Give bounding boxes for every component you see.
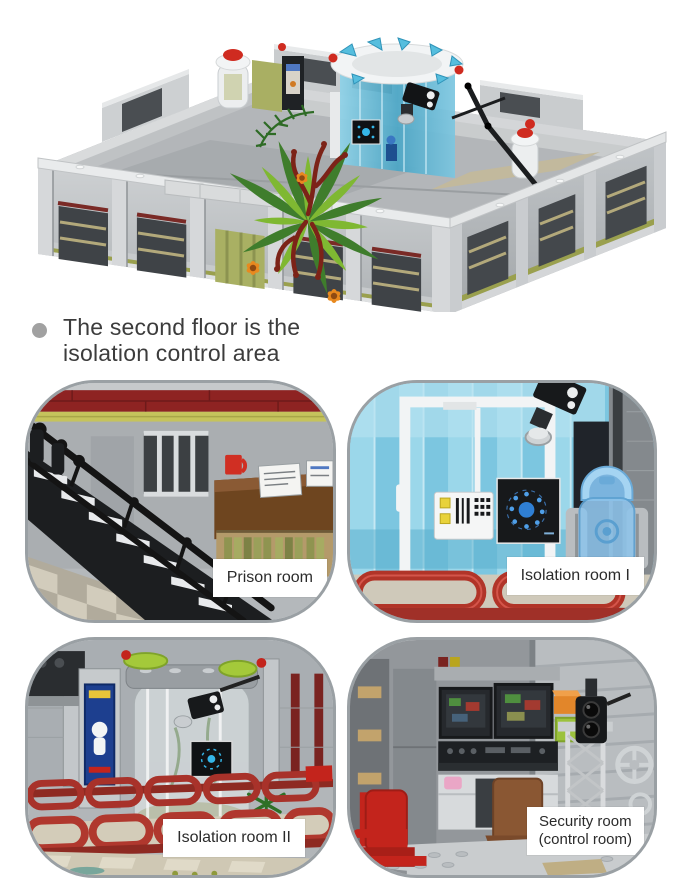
monitor-screen: [191, 741, 232, 776]
photo-security-room: Security room (control room): [347, 637, 657, 878]
control-console: [438, 741, 558, 770]
label-text: Isolation room II: [177, 829, 291, 846]
label-text-line-1: Security room: [539, 813, 632, 830]
headline-text: The second floor is the isolation contro…: [63, 314, 300, 366]
headline-line-1: The second floor is the: [63, 314, 300, 340]
label-text-line-2: (control room): [539, 831, 632, 848]
photo-prison-room: Prison room: [25, 380, 336, 623]
monitors: [434, 657, 560, 737]
canister: [216, 49, 250, 108]
poster-sign: [282, 56, 304, 110]
label-isolation-room-2: Isolation room II: [163, 819, 305, 857]
label-text: Prison room: [227, 569, 313, 586]
photo-isolation-room-1: Isolation room I: [347, 380, 657, 623]
olive-wall-section: [252, 60, 282, 112]
isolation-chamber: [329, 38, 464, 178]
virus-sign: [497, 478, 560, 543]
headline: The second floor is the isolation contro…: [32, 314, 300, 366]
building-photo: [0, 0, 679, 312]
label-prison-room: Prison room: [213, 559, 327, 597]
label-security-room: Security room (control room): [527, 807, 644, 855]
bullet-dot: [32, 323, 47, 338]
keypad-panel: [434, 492, 493, 539]
desk: [214, 455, 333, 539]
label-isolation-room-1: Isolation room I: [507, 557, 644, 595]
barred-window: [144, 433, 209, 494]
roof-band: [28, 383, 333, 422]
headline-line-2: isolation control area: [63, 340, 280, 366]
product-image: The second floor is the isolation contro…: [0, 0, 679, 882]
photo-isolation-room-2: Isolation room II: [25, 637, 336, 878]
label-text: Isolation room I: [521, 567, 630, 584]
